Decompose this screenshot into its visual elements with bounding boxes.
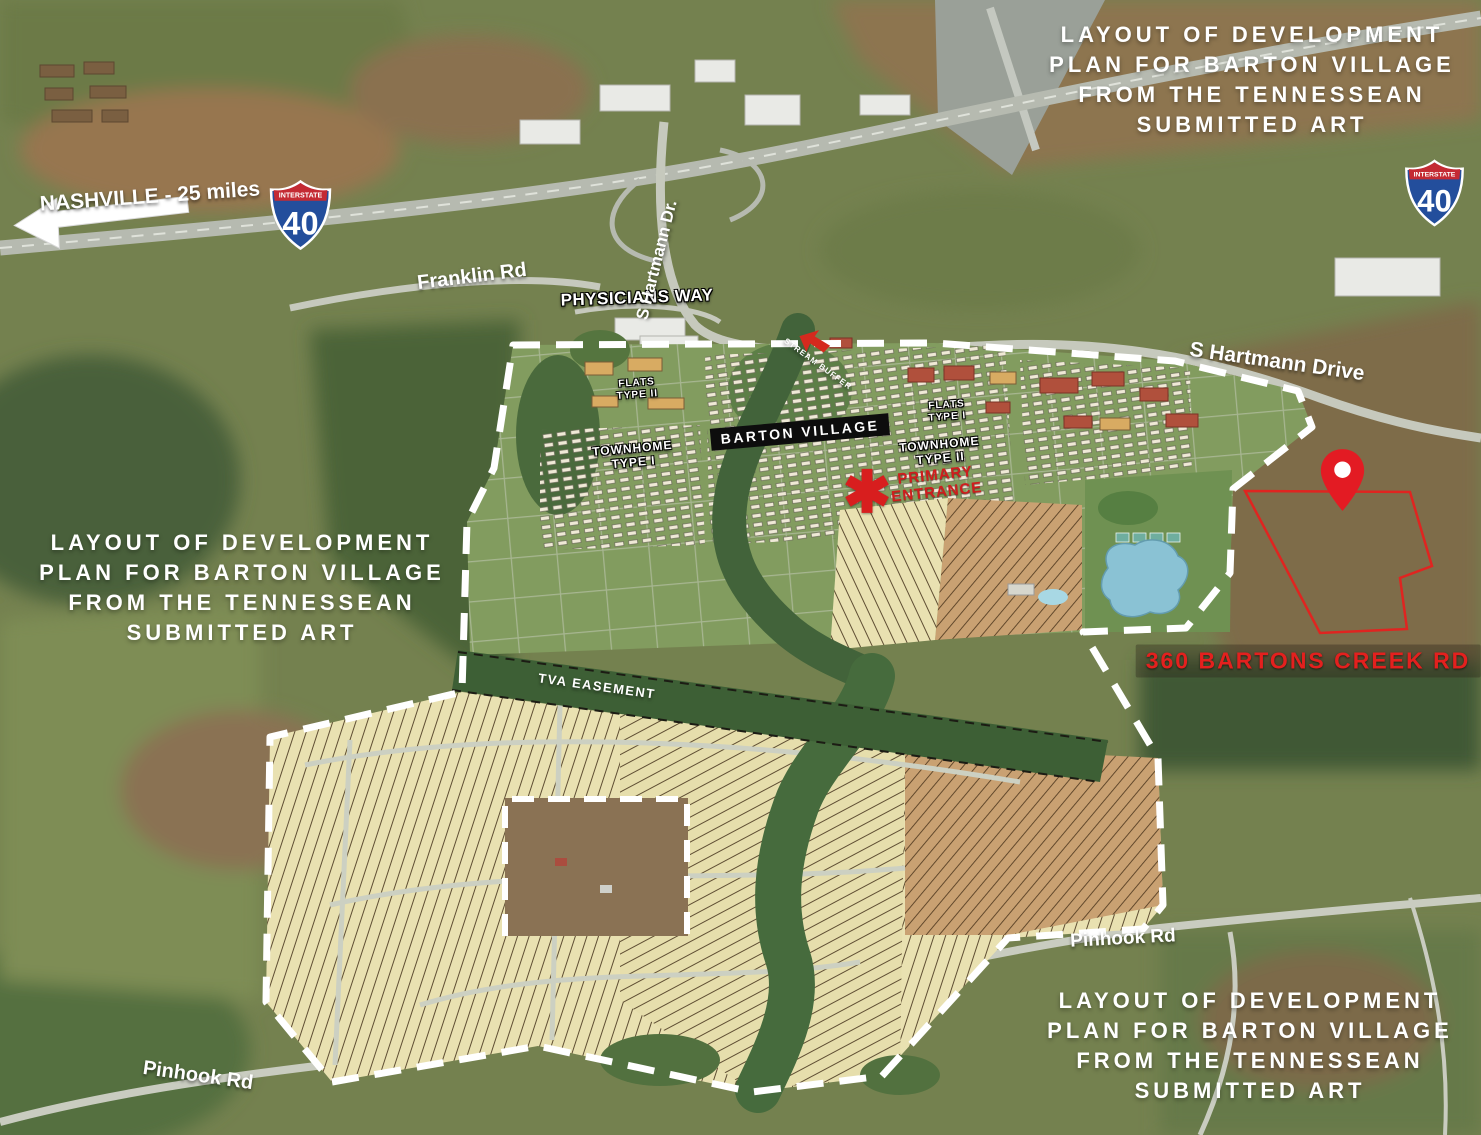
- aerial-map: INTERSTATE 40 INTERSTATE 40 ✱ LAYOUT OF …: [0, 0, 1481, 1135]
- credit-block-left: LAYOUT OF DEVELOPMENT PLAN FOR BARTON VI…: [39, 528, 445, 648]
- interstate-40-shield: INTERSTATE 40: [268, 178, 333, 252]
- credit-block-top-right: LAYOUT OF DEVELOPMENT PLAN FOR BARTON VI…: [1049, 20, 1455, 140]
- interstate-route-number: 40: [282, 205, 318, 241]
- interstate-label: INTERSTATE: [1414, 171, 1456, 178]
- flats-type-2-label: FLATS TYPE II: [616, 376, 659, 402]
- credit-line: LAYOUT OF DEVELOPMENT: [1047, 986, 1453, 1016]
- credit-line: LAYOUT OF DEVELOPMENT: [39, 528, 445, 558]
- credit-line: SUBMITTED ART: [1047, 1076, 1453, 1106]
- credit-line: SUBMITTED ART: [1049, 110, 1455, 140]
- primary-entrance-asterisk-icon: ✱: [843, 458, 892, 526]
- credit-line: LAYOUT OF DEVELOPMENT: [1049, 20, 1455, 50]
- interstate-40-shield: INTERSTATE 40: [1403, 158, 1466, 228]
- location-pin-icon: [1318, 447, 1367, 513]
- interstate-route-number: 40: [1417, 183, 1452, 218]
- credit-line: FROM THE TENNESSEAN: [1049, 80, 1455, 110]
- credit-line: PLAN FOR BARTON VILLAGE: [39, 558, 445, 588]
- credit-line: FROM THE TENNESSEAN: [39, 588, 445, 618]
- credit-line: PLAN FOR BARTON VILLAGE: [1049, 50, 1455, 80]
- credit-line: SUBMITTED ART: [39, 618, 445, 648]
- flats-type-1-label: FLATS TYPE I: [927, 398, 966, 424]
- interstate-label: INTERSTATE: [279, 192, 323, 200]
- property-address-label: 360 BARTONS CREEK RD: [1136, 645, 1481, 678]
- credit-line: FROM THE TENNESSEAN: [1047, 1046, 1453, 1076]
- credit-block-bottom-right: LAYOUT OF DEVELOPMENT PLAN FOR BARTON VI…: [1047, 986, 1453, 1106]
- credit-line: PLAN FOR BARTON VILLAGE: [1047, 1016, 1453, 1046]
